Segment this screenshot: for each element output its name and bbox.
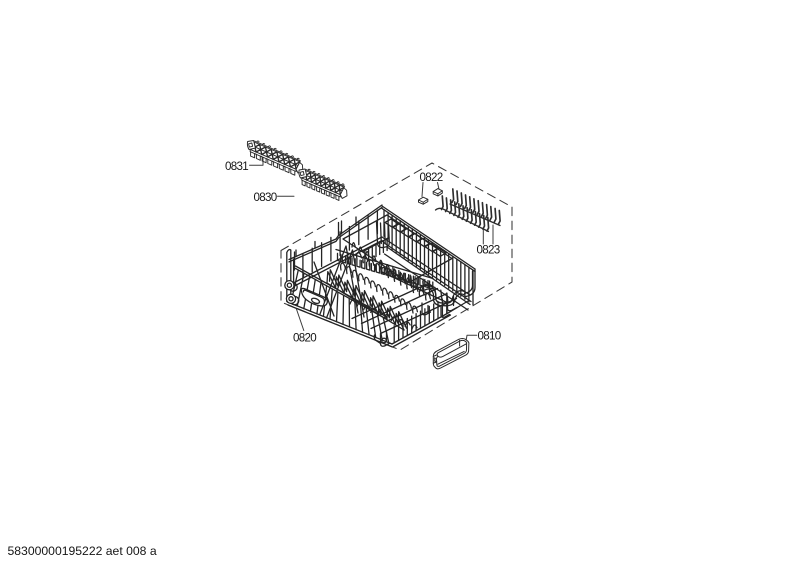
svg-text:0830: 0830	[254, 191, 277, 204]
svg-text:0823: 0823	[477, 244, 500, 257]
svg-text:58300000195222 aet 008 a: 58300000195222 aet 008 a	[8, 544, 157, 558]
svg-text:0831: 0831	[225, 160, 248, 173]
svg-text:0810: 0810	[478, 330, 501, 343]
svg-text:0820: 0820	[293, 332, 316, 345]
